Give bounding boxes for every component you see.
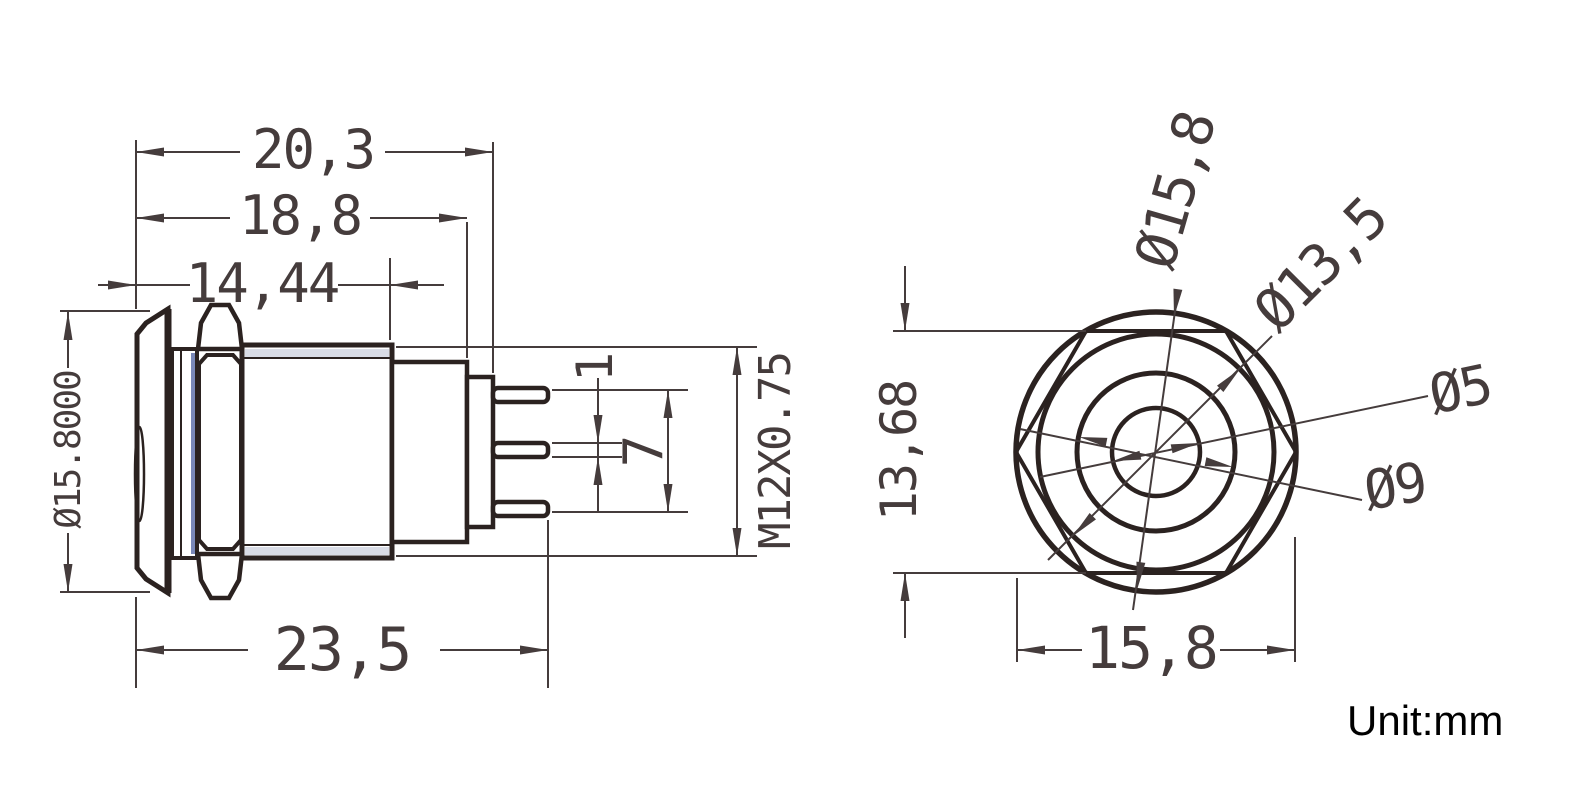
dim-hex-across-flats: 13,68: [870, 381, 928, 522]
dim-width-total: 23,5: [274, 615, 411, 685]
dim-cap-diameter-front: Ø15,8: [1123, 106, 1229, 276]
dim-thread-spec: M12X0.75: [750, 353, 801, 549]
terminal-pin-middle: [493, 443, 548, 457]
thread-tint-top: [245, 349, 389, 357]
unit-note: Unit:mm: [1347, 697, 1503, 744]
rear-step-1: [392, 362, 467, 542]
dim-center-hole-diameter: Ø5: [1424, 352, 1497, 426]
rear-step-2: [467, 377, 493, 527]
front-view-dimensions: 13,68 15,8 Ø15,8 Ø13,5 Ø5 Ø9: [870, 106, 1496, 682]
side-view: [135, 305, 548, 598]
dim-overall-width-front: 15,8: [1085, 614, 1217, 682]
dim-pin-span: 7: [612, 437, 675, 468]
dim-width-body: 14,44: [186, 252, 339, 315]
push-button-dimension-drawing: 20,3 18,8 14,44 23,5 Ø15.8000 1: [0, 0, 1575, 787]
dim-width-to-step2: 20,3: [252, 118, 374, 181]
dim-cap-diameter-side: Ø15.8000: [48, 371, 89, 529]
threaded-body: [242, 345, 392, 558]
thread-tint-bottom: [245, 547, 389, 555]
dim-pin-thickness: 1: [566, 354, 624, 382]
dim-width-to-step1: 18,8: [239, 184, 361, 247]
terminal-pin-top: [493, 388, 548, 402]
cap-profile: [137, 309, 168, 593]
terminal-pin-bottom: [493, 502, 548, 516]
hex-nut-bottom: [198, 554, 242, 598]
dim-button-diameter: Ø9: [1359, 450, 1430, 523]
washer: [199, 355, 241, 549]
dim-flange-diameter: Ø13,5: [1242, 186, 1400, 344]
technical-drawing-page: 20,3 18,8 14,44 23,5 Ø15.8000 1: [0, 0, 1575, 787]
